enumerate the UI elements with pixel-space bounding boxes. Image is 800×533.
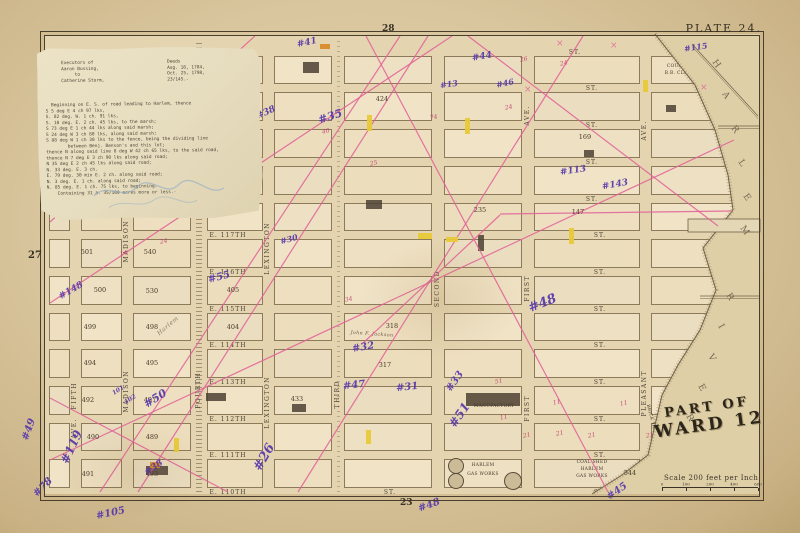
city-block [534,92,640,121]
street-label: ST. [594,269,606,276]
pink-x-mark: × [524,85,532,95]
block-number: 495 [146,359,158,367]
street-label: E. 113TH [210,379,247,386]
scale-tick [734,488,735,491]
building-footprint [478,235,484,251]
avenue-label: AVE. [641,120,648,141]
building-footprint [292,404,306,412]
city-block [344,203,432,231]
avenue-label: SECOND [434,270,441,307]
block-number: 405 [227,286,239,294]
avenue-label: AVE. [524,105,531,126]
building-footprint [584,150,594,157]
club-label: B.B. CLUB [665,70,691,75]
pink-x-mark: × [610,41,618,51]
street-label: ST. [569,49,581,56]
street-label: ST. [594,379,606,386]
margin-number-bottom: 23 [400,498,413,508]
block-number: 540 [144,248,156,256]
avenue-label: FIRST [524,275,531,302]
city-block [651,203,756,231]
red-ink-annotation: 11 [499,413,508,421]
city-block [274,203,333,231]
red-ink-annotation: 74 [429,113,438,121]
gas-works-label: HARLEM [472,462,495,467]
scale-bar: 0100200400600 [662,487,758,494]
city-block [444,166,522,195]
city-block [534,349,640,378]
pink-x-mark: × [556,39,564,49]
city-block [651,276,756,305]
purple-ink-annotation: #31 [395,381,418,394]
scale-tick-number: 200 [706,482,713,487]
highlighted-lot [569,228,574,244]
block-number: 318 [386,322,398,330]
purple-ink-annotation: #49 [20,417,38,442]
block-number: 501 [81,248,93,256]
purple-ink-annotation: #47 [342,379,365,392]
city-block [133,276,192,305]
avenue-label: FIRST [524,395,531,422]
city-block [534,56,640,84]
city-block [49,386,70,415]
city-block [651,129,756,158]
city-block [444,276,522,305]
street-label: ST. [384,489,396,496]
highlighted-lot [643,80,648,92]
margin-number-left: 27 [28,250,42,261]
street-label: ST. [594,452,606,459]
city-block [274,423,333,451]
coal-shed-label: GAS WORKS [576,473,608,478]
coal-shed-label: COAL SHED [577,459,608,464]
deed-note-body: Beginning on E. S. of road leading to Ha… [46,99,266,196]
city-block [651,349,756,378]
avenue-label: LEXINGTON [264,222,271,275]
purple-ink-annotation: #105 [95,505,126,522]
block-number: 317 [379,361,391,369]
building-footprint [303,62,319,73]
coal-shed-label: HARLEM [581,466,604,471]
block-number: 169 [579,133,591,141]
city-block [344,166,432,195]
block-number: 490 [87,433,99,441]
block-number: 499 [84,323,96,331]
city-block [49,239,70,268]
plate-label: PLATE 24. [686,22,762,35]
city-block [651,239,756,268]
purple-ink-annotation: #13 [439,78,458,90]
city-block [49,349,70,378]
city-block [344,56,432,84]
city-block [274,166,333,195]
block-number: 404 [227,323,239,331]
street-label: ST. [586,159,598,166]
avenue-label: MADISON [123,370,130,412]
deed-note: Executors of Aaron Bussing, to Catherine… [37,45,263,220]
scale-tick [758,488,759,491]
city-block [207,423,263,451]
street-label: ST. [586,196,598,203]
deed-note-deeds: Deeds Aug. 18, 1784, Oct. 25, 1798, 23/1… [167,58,205,82]
purple-ink-annotation: #115 [683,40,708,53]
city-block [534,203,640,231]
margin-number-top: 28 [382,24,395,34]
city-block [207,239,263,268]
street-label: E. 110TH [210,489,247,496]
building-footprint [666,105,676,112]
gas-tank [448,473,464,489]
city-block [274,349,333,378]
manufactory-label: MANUFACTORY [474,403,514,408]
city-block [49,313,70,341]
red-ink-annotation: 21 [522,431,531,439]
street-label: ST. [594,416,606,423]
block-number: 433 [291,395,303,403]
block-number: 530 [146,287,158,295]
scale-tick-number: 600 [754,482,761,487]
city-block [207,349,263,378]
city-block [651,166,756,195]
purple-ink-annotation: #41 [296,36,318,50]
block-number: 498 [146,323,158,331]
gas-tank [448,458,464,474]
city-block [534,423,640,451]
block-number: 500 [94,286,106,294]
city-block [274,313,333,341]
city-block [534,313,640,341]
scale-tick [686,488,687,491]
building-footprint [206,393,226,401]
gas-works-label: GAS WORKS [467,471,499,476]
avenue-label: FOURTH [195,372,202,409]
street-label: E. 115TH [210,306,247,313]
street-label: E. 117TH [210,232,247,239]
block-number: 544 [624,469,636,477]
gas-tank [504,472,522,490]
street-label: ST. [594,342,606,349]
highlighted-lot [446,237,458,242]
purple-ink-annotation: #46 [495,76,515,89]
city-block [344,239,432,268]
street-label: ST. [594,306,606,313]
scale-tick [710,488,711,491]
city-block [344,423,432,451]
city-block [133,423,192,451]
highlighted-lot [418,233,432,239]
scale-tick-number: 0 [661,482,663,487]
red-ink-annotation: 51 [494,377,503,385]
city-block [444,129,522,158]
highlighted-lot [367,115,372,131]
avenue-label: LEXINGTON [264,376,271,429]
street-label: E. 111TH [210,452,247,459]
city-block [344,129,432,158]
club-label: COUNTY [667,63,689,68]
atlas-sheet: FIFTHAVE.MADISONMADISONFOURTHLEXINGTONLE… [0,0,800,533]
red-ink-annotation: 26 [519,55,528,63]
scale-tick-number: 400 [730,482,737,487]
city-block [344,276,432,305]
city-block [534,239,640,268]
highlighted-lot [465,118,470,134]
block-number: 147 [572,208,584,216]
block-number: 235 [474,206,486,214]
city-block [274,276,333,305]
city-block [444,313,522,341]
city-block [651,313,756,341]
highlighted-lot [366,430,371,444]
scale-tick [662,488,663,491]
block-number: 492 [82,396,94,404]
avenue-label: THIRD [334,380,341,408]
block-number: 424 [376,95,388,103]
purple-ink-annotation: #48 [417,497,442,515]
street-label: ST. [594,232,606,239]
building-footprint [366,200,382,209]
street-label: E. 114TH [210,342,247,349]
city-block [344,459,432,488]
scale-tick-number: 100 [682,482,689,487]
highlighted-lot [174,438,179,452]
city-block [133,349,192,378]
street-label: E. 112TH [210,416,247,423]
city-block [274,459,333,488]
scale-label: Scale 200 feet per Inch [664,474,758,482]
block-number: 489 [146,433,158,441]
avenue-label: FIFTH [71,382,78,409]
deed-note-parties: Executors of Aaron Bussing, to Catherine… [61,60,104,84]
block-number: 494 [84,359,96,367]
street-label: ST. [594,489,606,496]
street-label: ST. [586,85,598,92]
street-label: ST. [586,122,598,129]
highlighted-lot [320,44,330,49]
block-number: 491 [82,470,94,478]
